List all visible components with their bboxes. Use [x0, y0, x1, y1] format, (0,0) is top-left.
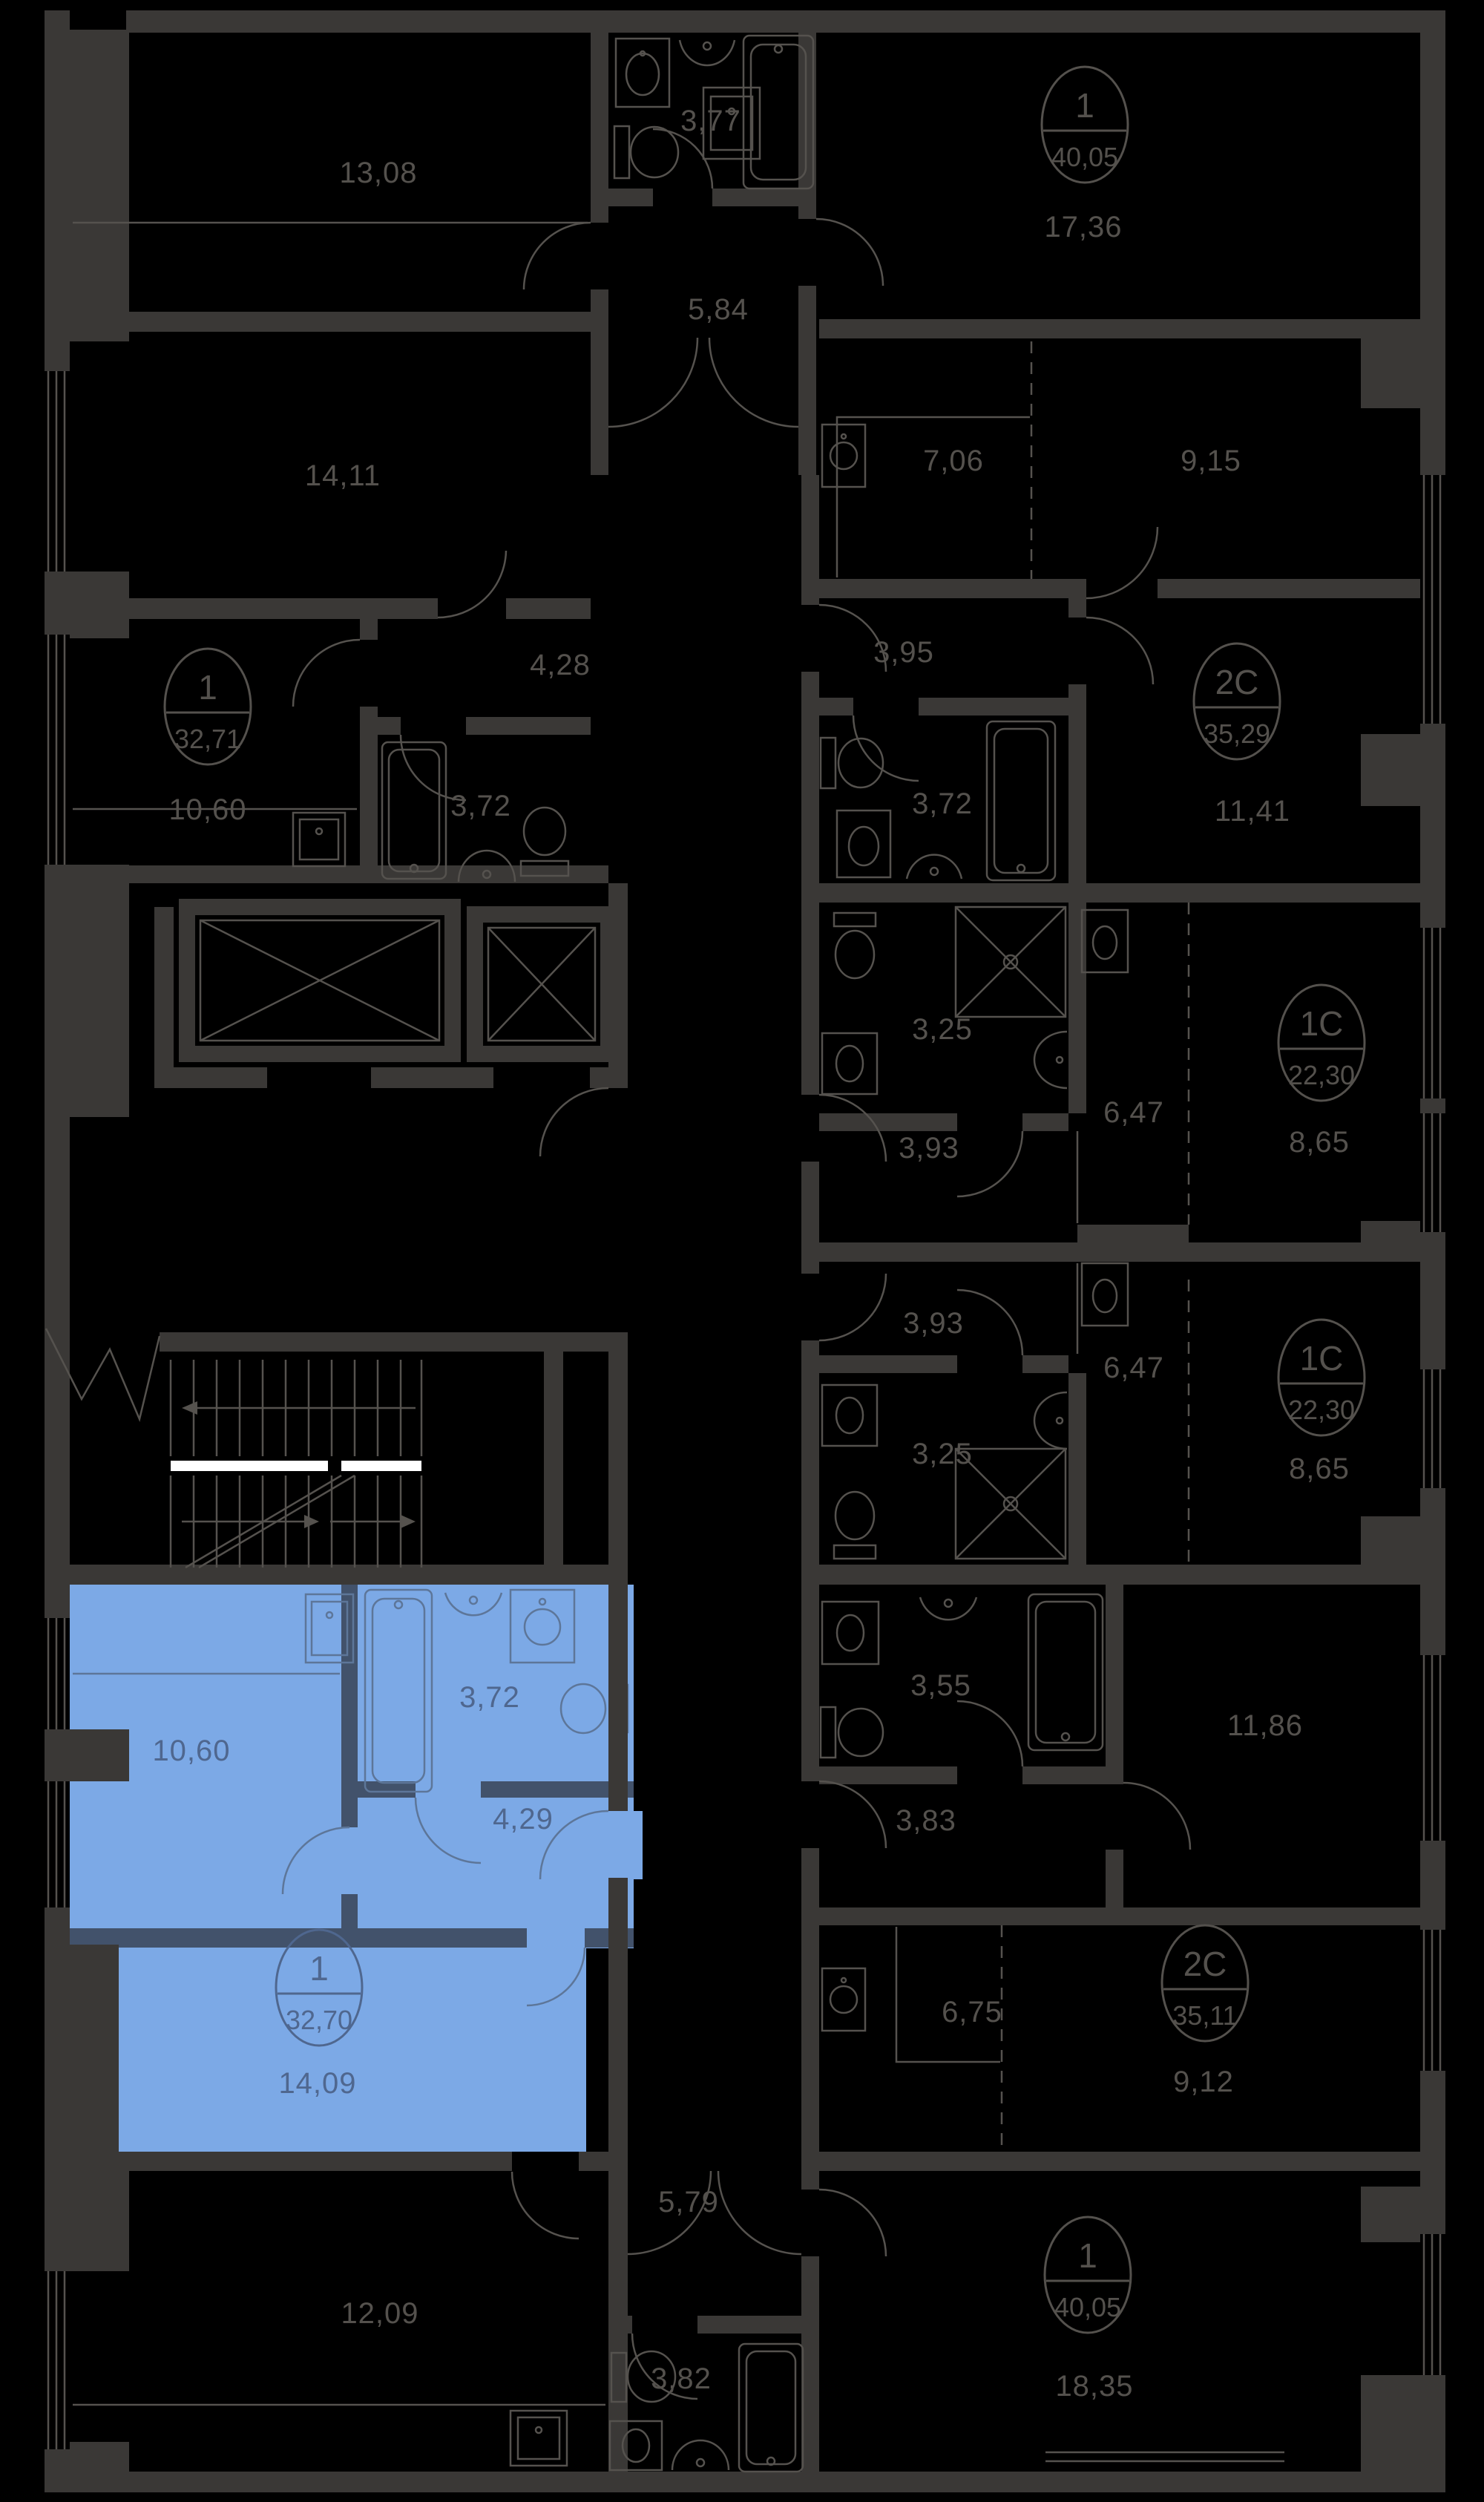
window-icon — [1420, 1930, 1445, 2071]
elevator-small — [475, 914, 608, 1054]
room-area-label-9-15: 9,15 — [1181, 445, 1241, 477]
unit-badge-mid-22-30-a: 1C 22,30 — [1278, 985, 1365, 1101]
window-icon — [1420, 928, 1445, 1098]
unit-badge-left-32-71: 1 32,71 — [165, 649, 251, 764]
room-area-label-18-35: 18,35 — [1055, 2370, 1133, 2403]
washing-machine-icon — [822, 1968, 865, 2031]
room-area-label-3-25b: 3,25 — [912, 1438, 973, 1470]
svg-text:1: 1 — [309, 1949, 329, 1988]
elevator-door — [267, 1067, 371, 1088]
unit-badge-top-40-05: 1 40,05 — [1042, 67, 1128, 183]
svg-text:35,29: 35,29 — [1204, 718, 1270, 749]
svg-text:35,11: 35,11 — [1172, 2000, 1237, 2031]
toilet-icon — [614, 126, 678, 178]
svg-text:1C: 1C — [1300, 1004, 1344, 1043]
svg-text:1: 1 — [198, 668, 217, 707]
door-arc — [709, 338, 798, 427]
room-area-label-17-36: 17,36 — [1044, 211, 1122, 243]
sink-icon — [920, 1597, 976, 1620]
svg-text:32,71: 32,71 — [174, 724, 241, 754]
sink-icon — [616, 39, 669, 107]
sink-icon — [822, 1385, 877, 1446]
room-area-label-3-72a: 3,72 — [450, 790, 511, 822]
door-arc — [293, 640, 360, 707]
sink-icon — [907, 855, 962, 879]
window-icon — [45, 1781, 70, 1907]
sink-icon — [822, 1033, 877, 1094]
window-icon — [45, 371, 70, 572]
room-area-label-7-06: 7,06 — [923, 445, 984, 477]
door-arc — [819, 1781, 886, 1848]
svg-text:2C: 2C — [1215, 663, 1259, 701]
bathtub-icon — [382, 742, 446, 879]
elevator-door — [493, 1067, 590, 1088]
room-area-label-3-83: 3,83 — [896, 1804, 956, 1837]
room-area-label-11-86: 11,86 — [1227, 1709, 1303, 1742]
elevator-large — [187, 907, 453, 1054]
window-icon — [45, 635, 70, 865]
staircase — [46, 1329, 421, 1568]
room-area-label-8-65b: 8,65 — [1289, 1453, 1350, 1485]
stair-arrow-icon — [304, 1515, 319, 1528]
stair-arrow-icon — [401, 1515, 416, 1528]
kitchen-sink-icon — [1082, 910, 1128, 972]
room-area-label-11-41: 11,41 — [1215, 795, 1290, 828]
door-arc — [1086, 618, 1153, 684]
door-arc — [816, 219, 883, 286]
room-area-label-5-79: 5,79 — [658, 2186, 719, 2218]
room-area-label-sel-4-29: 4,29 — [493, 1803, 554, 1835]
unit-badge-right-35-11: 2C 35,11 — [1162, 1925, 1248, 2041]
selected-area-room[interactable] — [119, 1948, 586, 2152]
window-icon — [1420, 2234, 1445, 2375]
room-area-label-9-12: 9,12 — [1173, 2066, 1234, 2098]
balcony-window-icon — [1045, 2443, 1284, 2470]
svg-text:22,30: 22,30 — [1288, 1060, 1355, 1090]
room-area-label-10-60: 10,60 — [168, 793, 246, 826]
sink-icon — [672, 2440, 729, 2470]
door-arc — [608, 338, 697, 427]
room-area-label-3-25a: 3,25 — [912, 1013, 973, 1046]
svg-text:2C: 2C — [1183, 1945, 1227, 1983]
room-area-label-6-47a: 6,47 — [1103, 1096, 1164, 1129]
stair-arrow-icon — [182, 1401, 197, 1415]
window-icon — [1420, 1113, 1445, 1232]
door-arc — [512, 2172, 579, 2239]
bathtub-icon — [987, 721, 1055, 880]
toilet-icon — [821, 1707, 883, 1758]
door-arc — [718, 2171, 801, 2254]
unit-badge-bottom-40-05: 1 40,05 — [1045, 2217, 1131, 2333]
room-area-label-3-77: 3,77 — [680, 105, 741, 137]
sink-icon — [1034, 1032, 1067, 1088]
kitchen-sink-icon — [293, 813, 345, 866]
room-area-label-4-28: 4,28 — [530, 649, 591, 681]
svg-text:1: 1 — [1078, 2236, 1097, 2275]
room-area-label-6-47b: 6,47 — [1103, 1352, 1164, 1384]
room-area-label-sel-3-72: 3,72 — [459, 1681, 520, 1714]
window-icon — [1420, 1369, 1445, 1488]
door-arc — [819, 2190, 886, 2256]
room-area-label-3-93b: 3,93 — [903, 1307, 964, 1340]
door-arc — [957, 1290, 1022, 1355]
door-arc — [1123, 1783, 1190, 1850]
washing-machine-icon — [822, 425, 865, 487]
door-arc — [438, 551, 506, 618]
sink-icon — [680, 40, 735, 65]
unit-badge-right-35-29: 2C 35,29 — [1194, 643, 1280, 759]
shower-icon — [956, 907, 1066, 1017]
room-area-label-sel-14-09: 14,09 — [278, 2067, 356, 2100]
toilet-icon — [834, 913, 876, 978]
kitchen-sink-icon — [510, 2411, 567, 2466]
door-arc — [957, 1131, 1022, 1196]
bathtub-icon — [739, 2344, 803, 2472]
room-area-label-14-11: 14,11 — [305, 459, 381, 492]
window-icon — [45, 2271, 70, 2449]
room-area-label-6-75: 6,75 — [942, 1996, 1002, 2028]
door-arc — [957, 1701, 1022, 1766]
window-icon — [45, 1618, 70, 1729]
bathtub-icon — [1028, 1594, 1103, 1750]
svg-text:32,70: 32,70 — [286, 2005, 352, 2035]
kitchen-sink-icon — [1082, 1263, 1128, 1326]
svg-text:1C: 1C — [1300, 1339, 1344, 1378]
sink-icon — [822, 1602, 879, 1664]
window-icon — [1420, 1655, 1445, 1841]
stair-landing — [171, 1461, 328, 1471]
room-area-label-3-82: 3,82 — [651, 2362, 712, 2395]
svg-text:40,05: 40,05 — [1051, 142, 1118, 172]
room-area-label-3-55: 3,55 — [910, 1669, 971, 1702]
room-area-label-3-72b: 3,72 — [912, 787, 973, 820]
door-arc — [1086, 527, 1158, 598]
svg-text:1: 1 — [1075, 86, 1094, 125]
sink-icon — [837, 810, 890, 877]
stair-landing — [341, 1461, 421, 1471]
door-arc — [819, 1274, 886, 1340]
window-icon — [1420, 475, 1445, 724]
door-arc — [853, 715, 919, 781]
door-arc — [524, 223, 591, 289]
sink-icon — [1034, 1392, 1067, 1449]
selected-entry-niche — [628, 1811, 643, 1879]
room-area-label-5-84: 5,84 — [688, 293, 749, 326]
unit-badge-mid-22-30-b: 1C 22,30 — [1278, 1320, 1365, 1435]
room-area-label-12-09: 12,09 — [341, 2297, 418, 2330]
room-area-label-sel-10-60: 10,60 — [152, 1735, 230, 1767]
room-area-label-8-65a: 8,65 — [1289, 1126, 1350, 1159]
door-arc — [540, 1088, 608, 1156]
toilet-icon — [834, 1492, 876, 1559]
room-area-label-3-95: 3,95 — [873, 636, 934, 669]
svg-text:22,30: 22,30 — [1288, 1395, 1355, 1425]
floor-plan: 13,08 3,77 5,84 17,36 14,11 7,06 9,15 4,… — [0, 0, 1484, 2502]
svg-text:40,05: 40,05 — [1054, 2292, 1121, 2322]
room-area-label-13-08: 13,08 — [339, 157, 417, 189]
room-area-label-3-93a: 3,93 — [899, 1132, 959, 1165]
